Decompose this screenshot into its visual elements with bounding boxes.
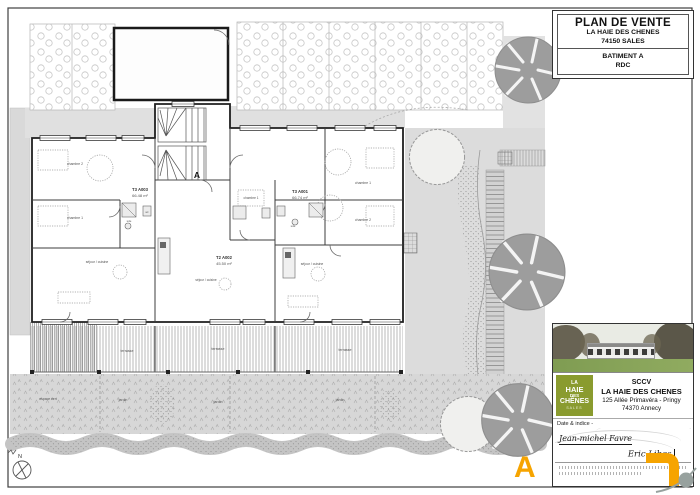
room-label: chambre 2 bbox=[355, 218, 371, 222]
company-city: 74370 Annecy bbox=[593, 405, 690, 413]
drawing-sheet: T3 A003 66.48 m² T2 A002 45.50 m² T3 A00… bbox=[0, 0, 700, 495]
title-block-top: PLAN DE VENTE LA HAIE DES CHENES 74150 S… bbox=[558, 15, 688, 49]
compass-icon: N bbox=[8, 450, 31, 479]
title-block: PLAN DE VENTE LA HAIE DES CHENES 74150 S… bbox=[552, 10, 694, 79]
project-city: 74150 SALES bbox=[558, 38, 688, 46]
apartment-label: T3 A001 bbox=[292, 189, 309, 194]
terrace-label: terrasse bbox=[121, 349, 134, 353]
title-block-inner: PLAN DE VENTE LA HAIE DES CHENES 74150 S… bbox=[557, 14, 689, 75]
room-label: chambre 2 bbox=[67, 162, 83, 166]
company-street: 125 Allée Primavéra - Pringy bbox=[593, 397, 690, 405]
apartment-label: T3 A003 bbox=[132, 187, 149, 192]
company-type: SCCV bbox=[593, 379, 690, 388]
project-name: LA HAIE DES CHENES bbox=[558, 29, 688, 37]
room-label: chambre 1 bbox=[67, 216, 83, 220]
developer-address: SCCV LA HAIE DES CHENES 125 Allée Primav… bbox=[593, 379, 690, 413]
company-name: LA HAIE DES CHENES bbox=[593, 387, 690, 396]
fine-print-row bbox=[559, 472, 643, 475]
date-indice-label: Date & indice - bbox=[553, 419, 693, 428]
signature-1: Jean-michel Favre bbox=[559, 434, 632, 445]
photo-building bbox=[587, 343, 655, 359]
garden-label: jardin bbox=[118, 398, 128, 402]
brand-logo: LA HAIE DES CHÊNES SALES bbox=[556, 375, 593, 416]
sheet-title: PLAN DE VENTE bbox=[558, 17, 688, 29]
garage-room bbox=[114, 28, 228, 100]
room-label: sde bbox=[127, 219, 132, 223]
garden-label: jardin bbox=[335, 398, 345, 402]
floor-level: RDC bbox=[558, 62, 688, 70]
logo-line: CHÊNES bbox=[556, 398, 593, 405]
builder-logo-icon bbox=[638, 444, 698, 494]
photo-lawn bbox=[553, 359, 693, 372]
apartment-label: T2 A002 bbox=[216, 255, 233, 260]
room-label: séjour / cuisine bbox=[86, 260, 109, 264]
room-label: séjour / cuisine bbox=[195, 278, 216, 282]
project-photo bbox=[553, 324, 693, 373]
logo-subline: SALES bbox=[556, 407, 593, 411]
sheet-marker: A bbox=[514, 451, 536, 485]
title-block-bottom: BATIMENT A RDC bbox=[558, 49, 688, 74]
terrace-label: terrasse bbox=[339, 348, 352, 352]
building-name: BATIMENT A bbox=[558, 53, 688, 61]
terrace-label: terrasse bbox=[212, 347, 225, 351]
apartment-area: 45.50 m² bbox=[216, 261, 232, 266]
north-label: N bbox=[18, 454, 22, 460]
apartment-area: 66.48 m² bbox=[132, 193, 148, 198]
garden-label: jardin bbox=[213, 400, 223, 404]
apartment-area: 66.74 m² bbox=[292, 195, 308, 200]
room-label: chambre 1 bbox=[355, 181, 371, 185]
room-label: séjour / cuisine bbox=[301, 262, 324, 266]
brand-row: LA HAIE DES CHÊNES SALES SCCV LA HAIE DE… bbox=[553, 373, 693, 419]
room-label: sde bbox=[291, 224, 296, 228]
entrance-marker: A bbox=[194, 170, 200, 180]
room-label: chambre 1 bbox=[243, 196, 258, 200]
garden-label: espace vert bbox=[39, 397, 57, 401]
